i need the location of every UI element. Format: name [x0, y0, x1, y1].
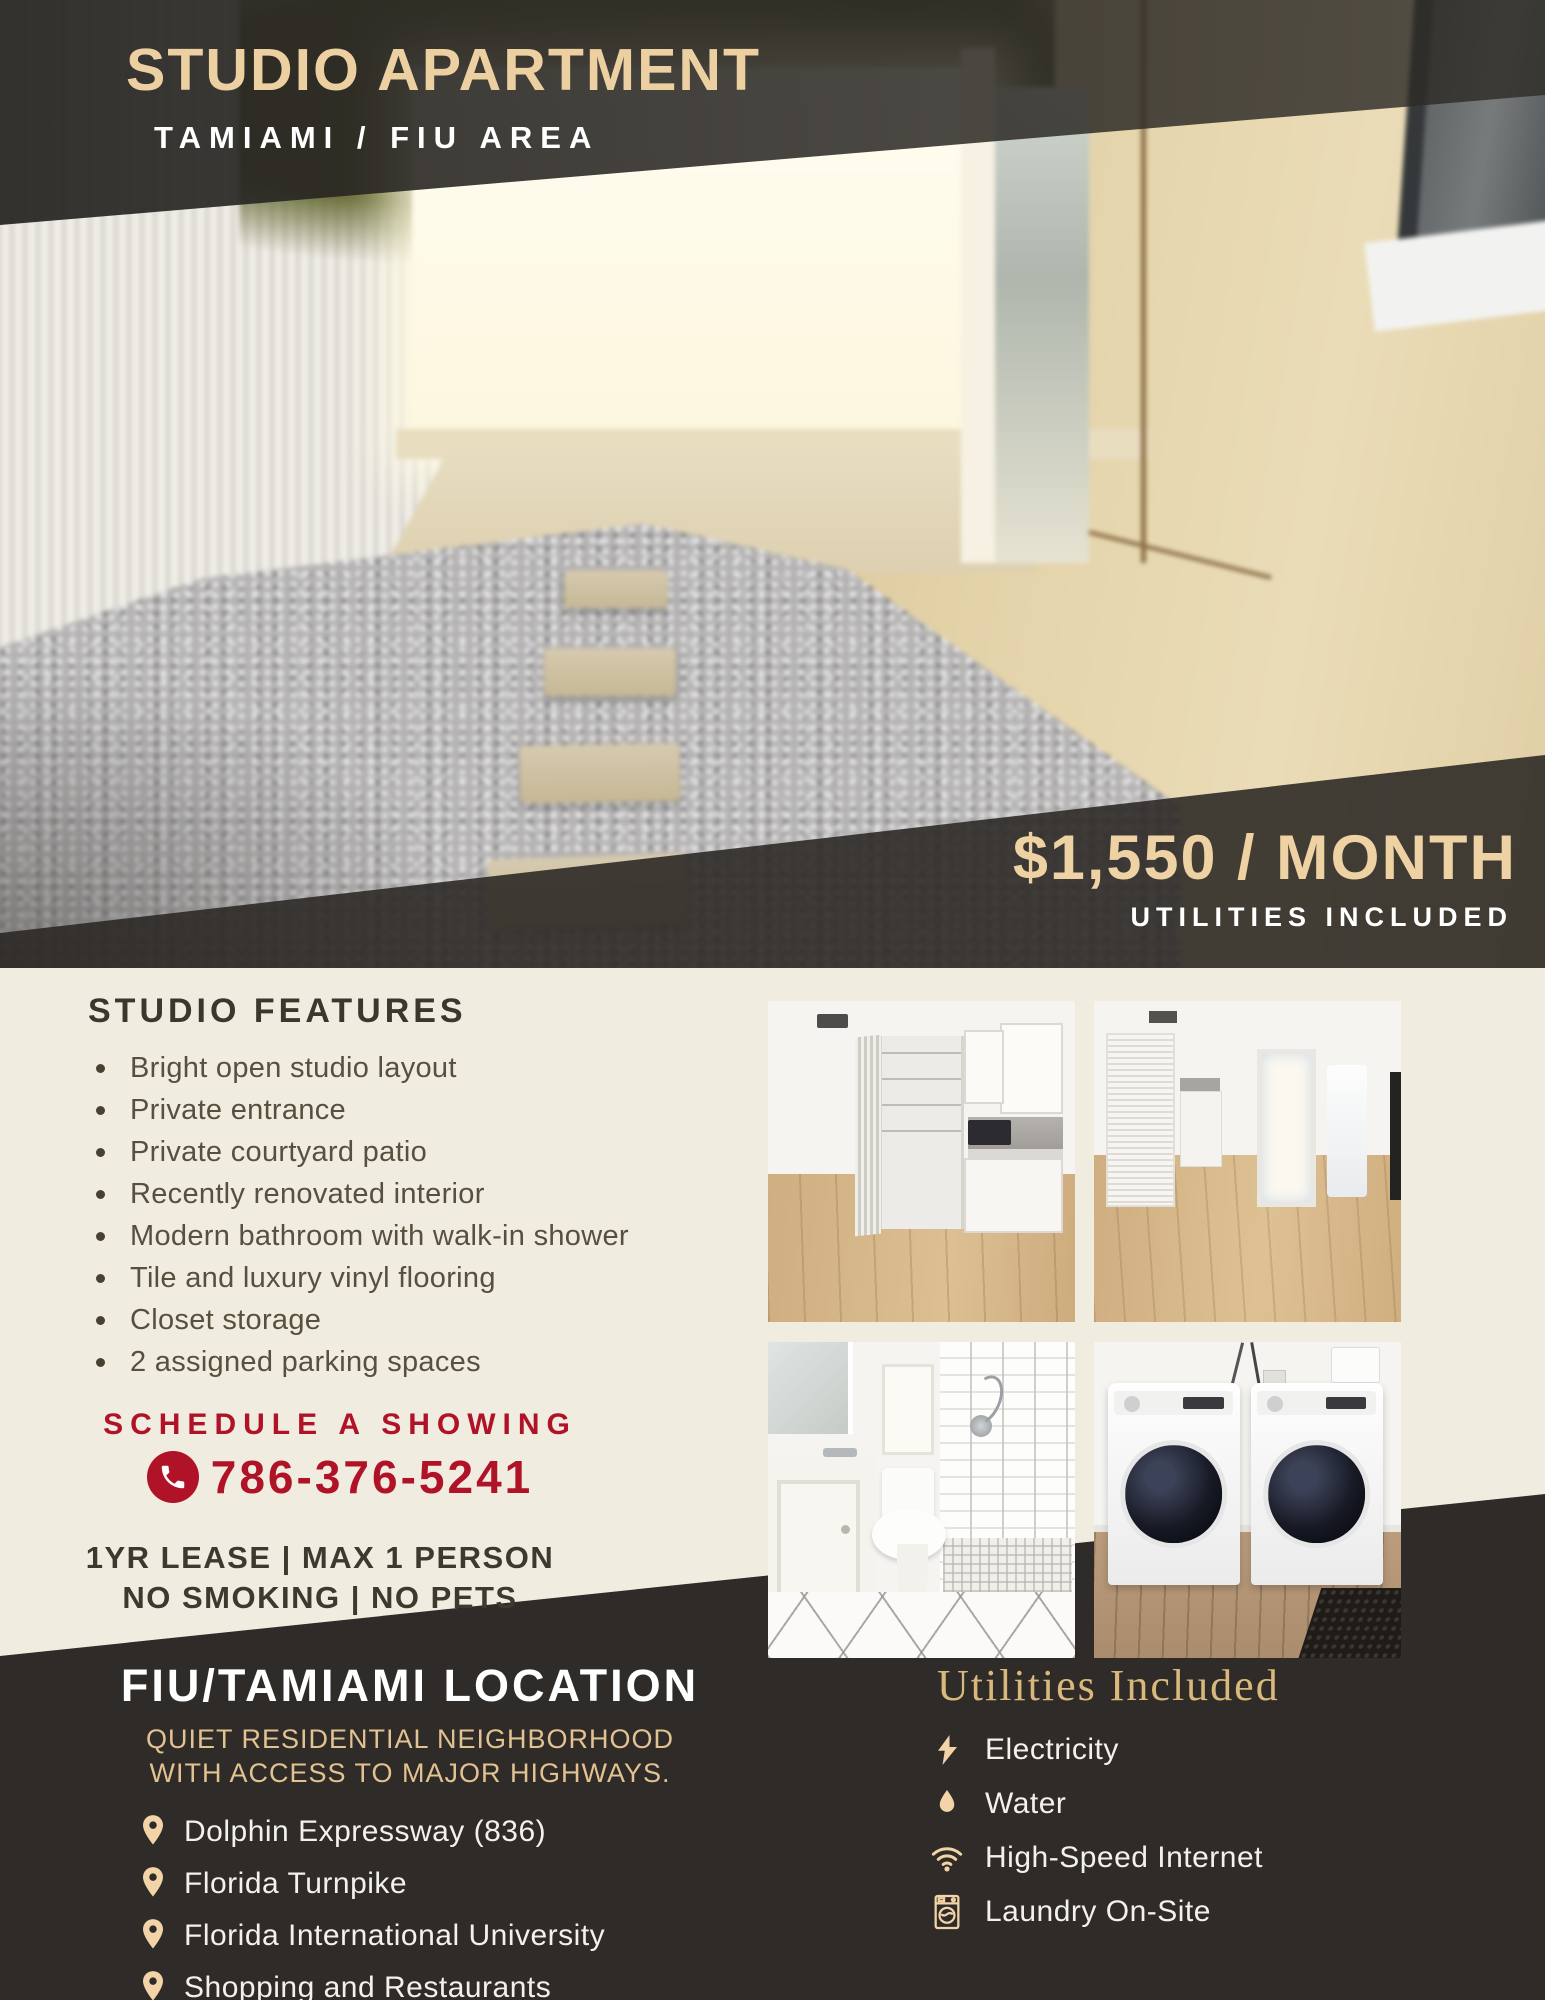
photo-grid	[768, 1001, 1401, 1658]
stepping-stone	[520, 743, 681, 804]
utilities-list: Electricity Water High-Speed Internet La…	[925, 1723, 1485, 1939]
photo-main-room	[1094, 1001, 1401, 1322]
mirror	[768, 1342, 853, 1434]
feature-item: Bright open studio layout	[88, 1047, 758, 1089]
map-pin-icon	[138, 1865, 168, 1903]
tv	[1390, 1072, 1401, 1200]
location-heading: FIU/TAMIAMI LOCATION	[90, 1660, 730, 1712]
feature-item: Closet storage	[88, 1299, 758, 1341]
lightning-icon	[925, 1732, 969, 1768]
glass-door	[995, 87, 1089, 563]
schedule-section: SCHEDULE A SHOWING 786-376-5241	[60, 1408, 620, 1504]
price-block: $1,550 / MONTH UTILITIES INCLUDED	[1013, 822, 1517, 933]
terms-section: 1YR LEASE | MAX 1 PERSON NO SMOKING | NO…	[40, 1538, 600, 1618]
utilities-heading: Utilities Included	[937, 1660, 1485, 1711]
faucet	[823, 1448, 857, 1457]
location-item: Florida International University	[138, 1910, 730, 1962]
washer	[1108, 1383, 1240, 1585]
dryer	[1251, 1383, 1383, 1585]
location-section: FIU/TAMIAMI LOCATION QUIET RESIDENTIAL N…	[90, 1660, 730, 2000]
phone-number: 786-376-5241	[211, 1450, 533, 1504]
kitchenette-cabinet	[1180, 1091, 1222, 1167]
map-pin-icon	[138, 1813, 168, 1851]
upper-cabinet	[1000, 1023, 1062, 1114]
feature-item: Private courtyard patio	[88, 1131, 758, 1173]
stepping-stone	[564, 570, 668, 608]
photo-kitchenette-closet	[768, 1001, 1075, 1322]
utilities-section: Utilities Included Electricity Water Hig…	[925, 1660, 1485, 1939]
page-title: STUDIO APARTMENT	[126, 36, 761, 104]
utility-item: Water	[925, 1777, 1485, 1831]
washing-machine-icon	[925, 1894, 969, 1930]
location-item: Florida Turnpike	[138, 1858, 730, 1910]
utility-item: Electricity	[925, 1723, 1485, 1777]
upper-cabinet	[964, 1030, 1005, 1105]
location-subheading: QUIET RESIDENTIAL NEIGHBORHOOD WITH ACCE…	[110, 1722, 710, 1790]
photo-laundry	[1094, 1342, 1401, 1658]
terms-line1: 1YR LEASE | MAX 1 PERSON	[40, 1538, 600, 1578]
features-list: Bright open studio layout Private entran…	[88, 1047, 758, 1383]
feature-item: Private entrance	[88, 1089, 758, 1131]
page-subtitle: TAMIAMI / FIU AREA	[154, 120, 761, 156]
location-item: Dolphin Expressway (836)	[138, 1806, 730, 1858]
price-amount: $1,550 / MONTH	[1013, 822, 1517, 894]
countertop	[968, 1149, 1063, 1159]
utility-item: High-Speed Internet	[925, 1831, 1485, 1885]
photo-bathroom	[768, 1342, 1075, 1658]
wifi-icon	[925, 1843, 969, 1873]
header: STUDIO APARTMENT TAMIAMI / FIU AREA	[126, 36, 761, 156]
feature-item: Modern bathroom with walk-in shower	[88, 1215, 758, 1257]
location-item: Shopping and Restaurants	[138, 1962, 730, 2000]
feature-item: Tile and luxury vinyl flooring	[88, 1257, 758, 1299]
hero-photo: STUDIO APARTMENT TAMIAMI / FIU AREA $1,5…	[0, 0, 1545, 968]
lower-cabinet	[964, 1158, 1063, 1233]
ceiling-vent	[1149, 1011, 1177, 1024]
feature-item: 2 assigned parking spaces	[88, 1341, 758, 1383]
utility-item: Laundry On-Site	[925, 1885, 1485, 1939]
water-drop-icon	[925, 1787, 969, 1821]
microwave	[968, 1120, 1011, 1146]
shower-floor	[943, 1538, 1072, 1592]
dryer-door	[1263, 1440, 1371, 1548]
schedule-label: SCHEDULE A SHOWING	[60, 1408, 620, 1442]
ceiling-vent	[817, 1014, 848, 1028]
detergent-bin	[1331, 1347, 1379, 1384]
stepping-stone	[544, 648, 676, 696]
map-pin-icon	[138, 1969, 168, 2000]
map-pin-icon	[138, 1917, 168, 1955]
rental-flyer: STUDIO APARTMENT TAMIAMI / FIU AREA $1,5…	[0, 0, 1545, 2000]
closet	[879, 1036, 965, 1229]
price-note: UTILITIES INCLUDED	[1013, 902, 1517, 933]
features-section: STUDIO FEATURES Bright open studio layou…	[88, 992, 758, 1383]
refrigerator	[1327, 1065, 1367, 1197]
bathroom-window	[882, 1364, 934, 1455]
tile-floor	[768, 1592, 1075, 1658]
phone-row: 786-376-5241	[60, 1450, 620, 1504]
terms-line2: NO SMOKING | NO PETS	[40, 1578, 600, 1618]
louvered-door	[855, 1035, 881, 1237]
louvered-closet	[1106, 1033, 1174, 1207]
phone-icon	[147, 1451, 199, 1503]
entry-door	[1257, 1049, 1316, 1207]
features-heading: STUDIO FEATURES	[88, 992, 758, 1031]
location-list: Dolphin Expressway (836) Florida Turnpik…	[138, 1806, 730, 2000]
feature-item: Recently renovated interior	[88, 1173, 758, 1215]
toilet-base	[897, 1544, 928, 1598]
washer-door	[1120, 1440, 1228, 1548]
